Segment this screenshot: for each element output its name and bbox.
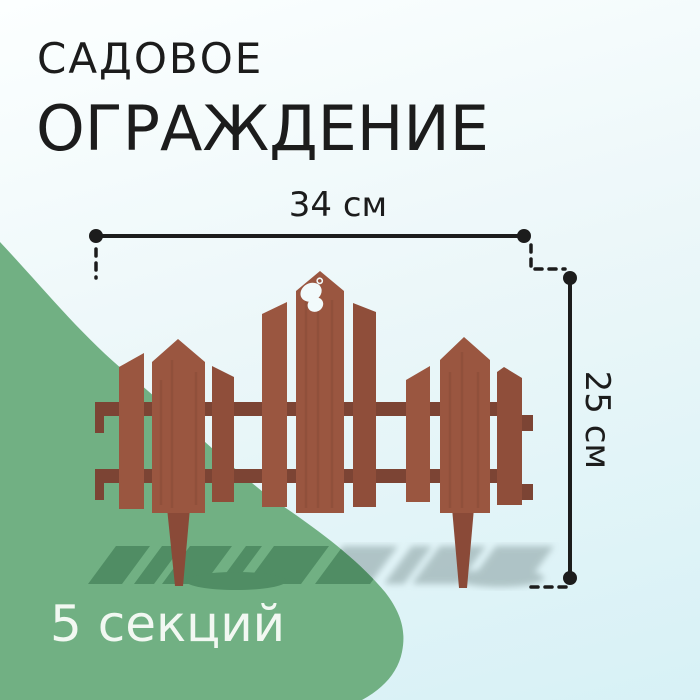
width-dimension-label: 34 см (238, 188, 438, 224)
fence-picket (262, 302, 287, 507)
title-line-1: САДОВОЕ (37, 37, 263, 81)
height-dimension-label: 25 см (578, 360, 614, 480)
sections-count-label: 5 секций (50, 598, 285, 651)
fence-picket (119, 353, 144, 509)
fence-picket (353, 303, 376, 507)
product-card: САДОВОЕ ОГРАЖДЕНИЕ 34 см 25 см 5 секций (0, 0, 700, 700)
height-dimension-line (528, 271, 577, 587)
fence-picket (212, 366, 234, 502)
fence-picket (497, 367, 522, 505)
fence-picket (406, 366, 430, 502)
title-line-2: ОГРАЖДЕНИЕ (36, 96, 489, 161)
width-dimension-line (89, 229, 565, 278)
fence-picket (440, 337, 490, 513)
